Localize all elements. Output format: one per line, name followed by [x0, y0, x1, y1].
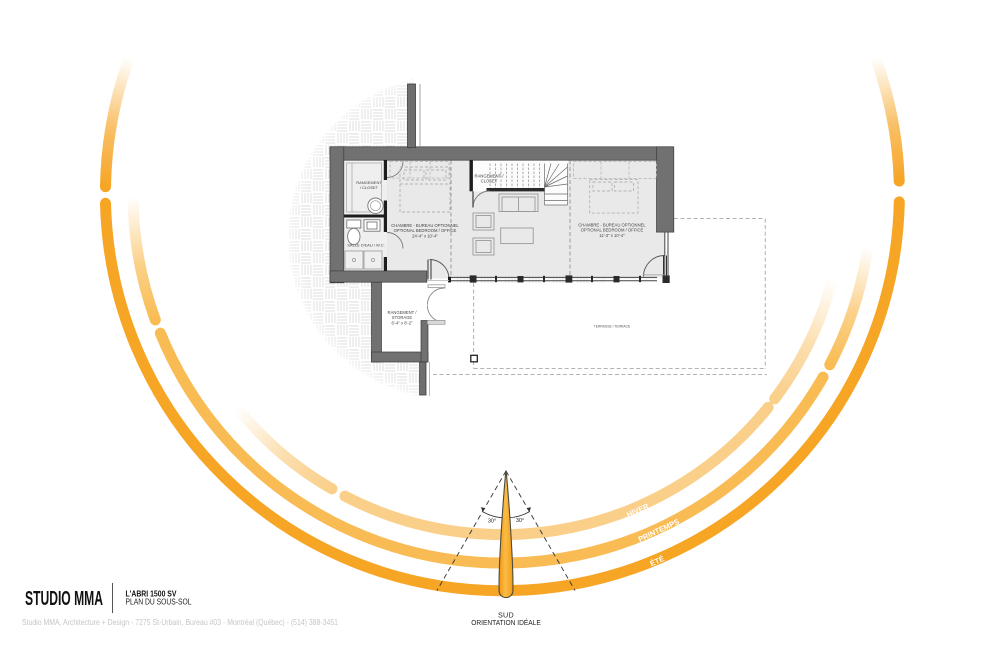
svg-text:30°: 30° — [488, 519, 496, 525]
svg-text:CLOSET: CLOSET — [481, 179, 498, 184]
svg-text:24'-4" x 10'-4": 24'-4" x 10'-4" — [412, 233, 438, 238]
svg-text:/ CLOSET: / CLOSET — [360, 185, 379, 190]
svg-text:Studio MMA, Architecture + Des: Studio MMA, Architecture + Design - 7275… — [22, 618, 338, 627]
svg-text:PLAN DU SOUS-SOL: PLAN DU SOUS-SOL — [126, 596, 192, 606]
svg-text:TERRASSE / TERRACE: TERRASSE / TERRACE — [594, 324, 631, 329]
svg-text:SALLE D'EAU / W.C.: SALLE D'EAU / W.C. — [347, 243, 384, 248]
svg-text:6'-4" x 8'-2": 6'-4" x 8'-2" — [391, 320, 413, 325]
svg-text:11'-3" x 10'-4": 11'-3" x 10'-4" — [599, 233, 625, 238]
svg-text:30°: 30° — [516, 518, 524, 524]
svg-text:STUDIO MMA: STUDIO MMA — [25, 587, 103, 610]
svg-text:ORIENTATION IDÉALE: ORIENTATION IDÉALE — [471, 618, 541, 627]
